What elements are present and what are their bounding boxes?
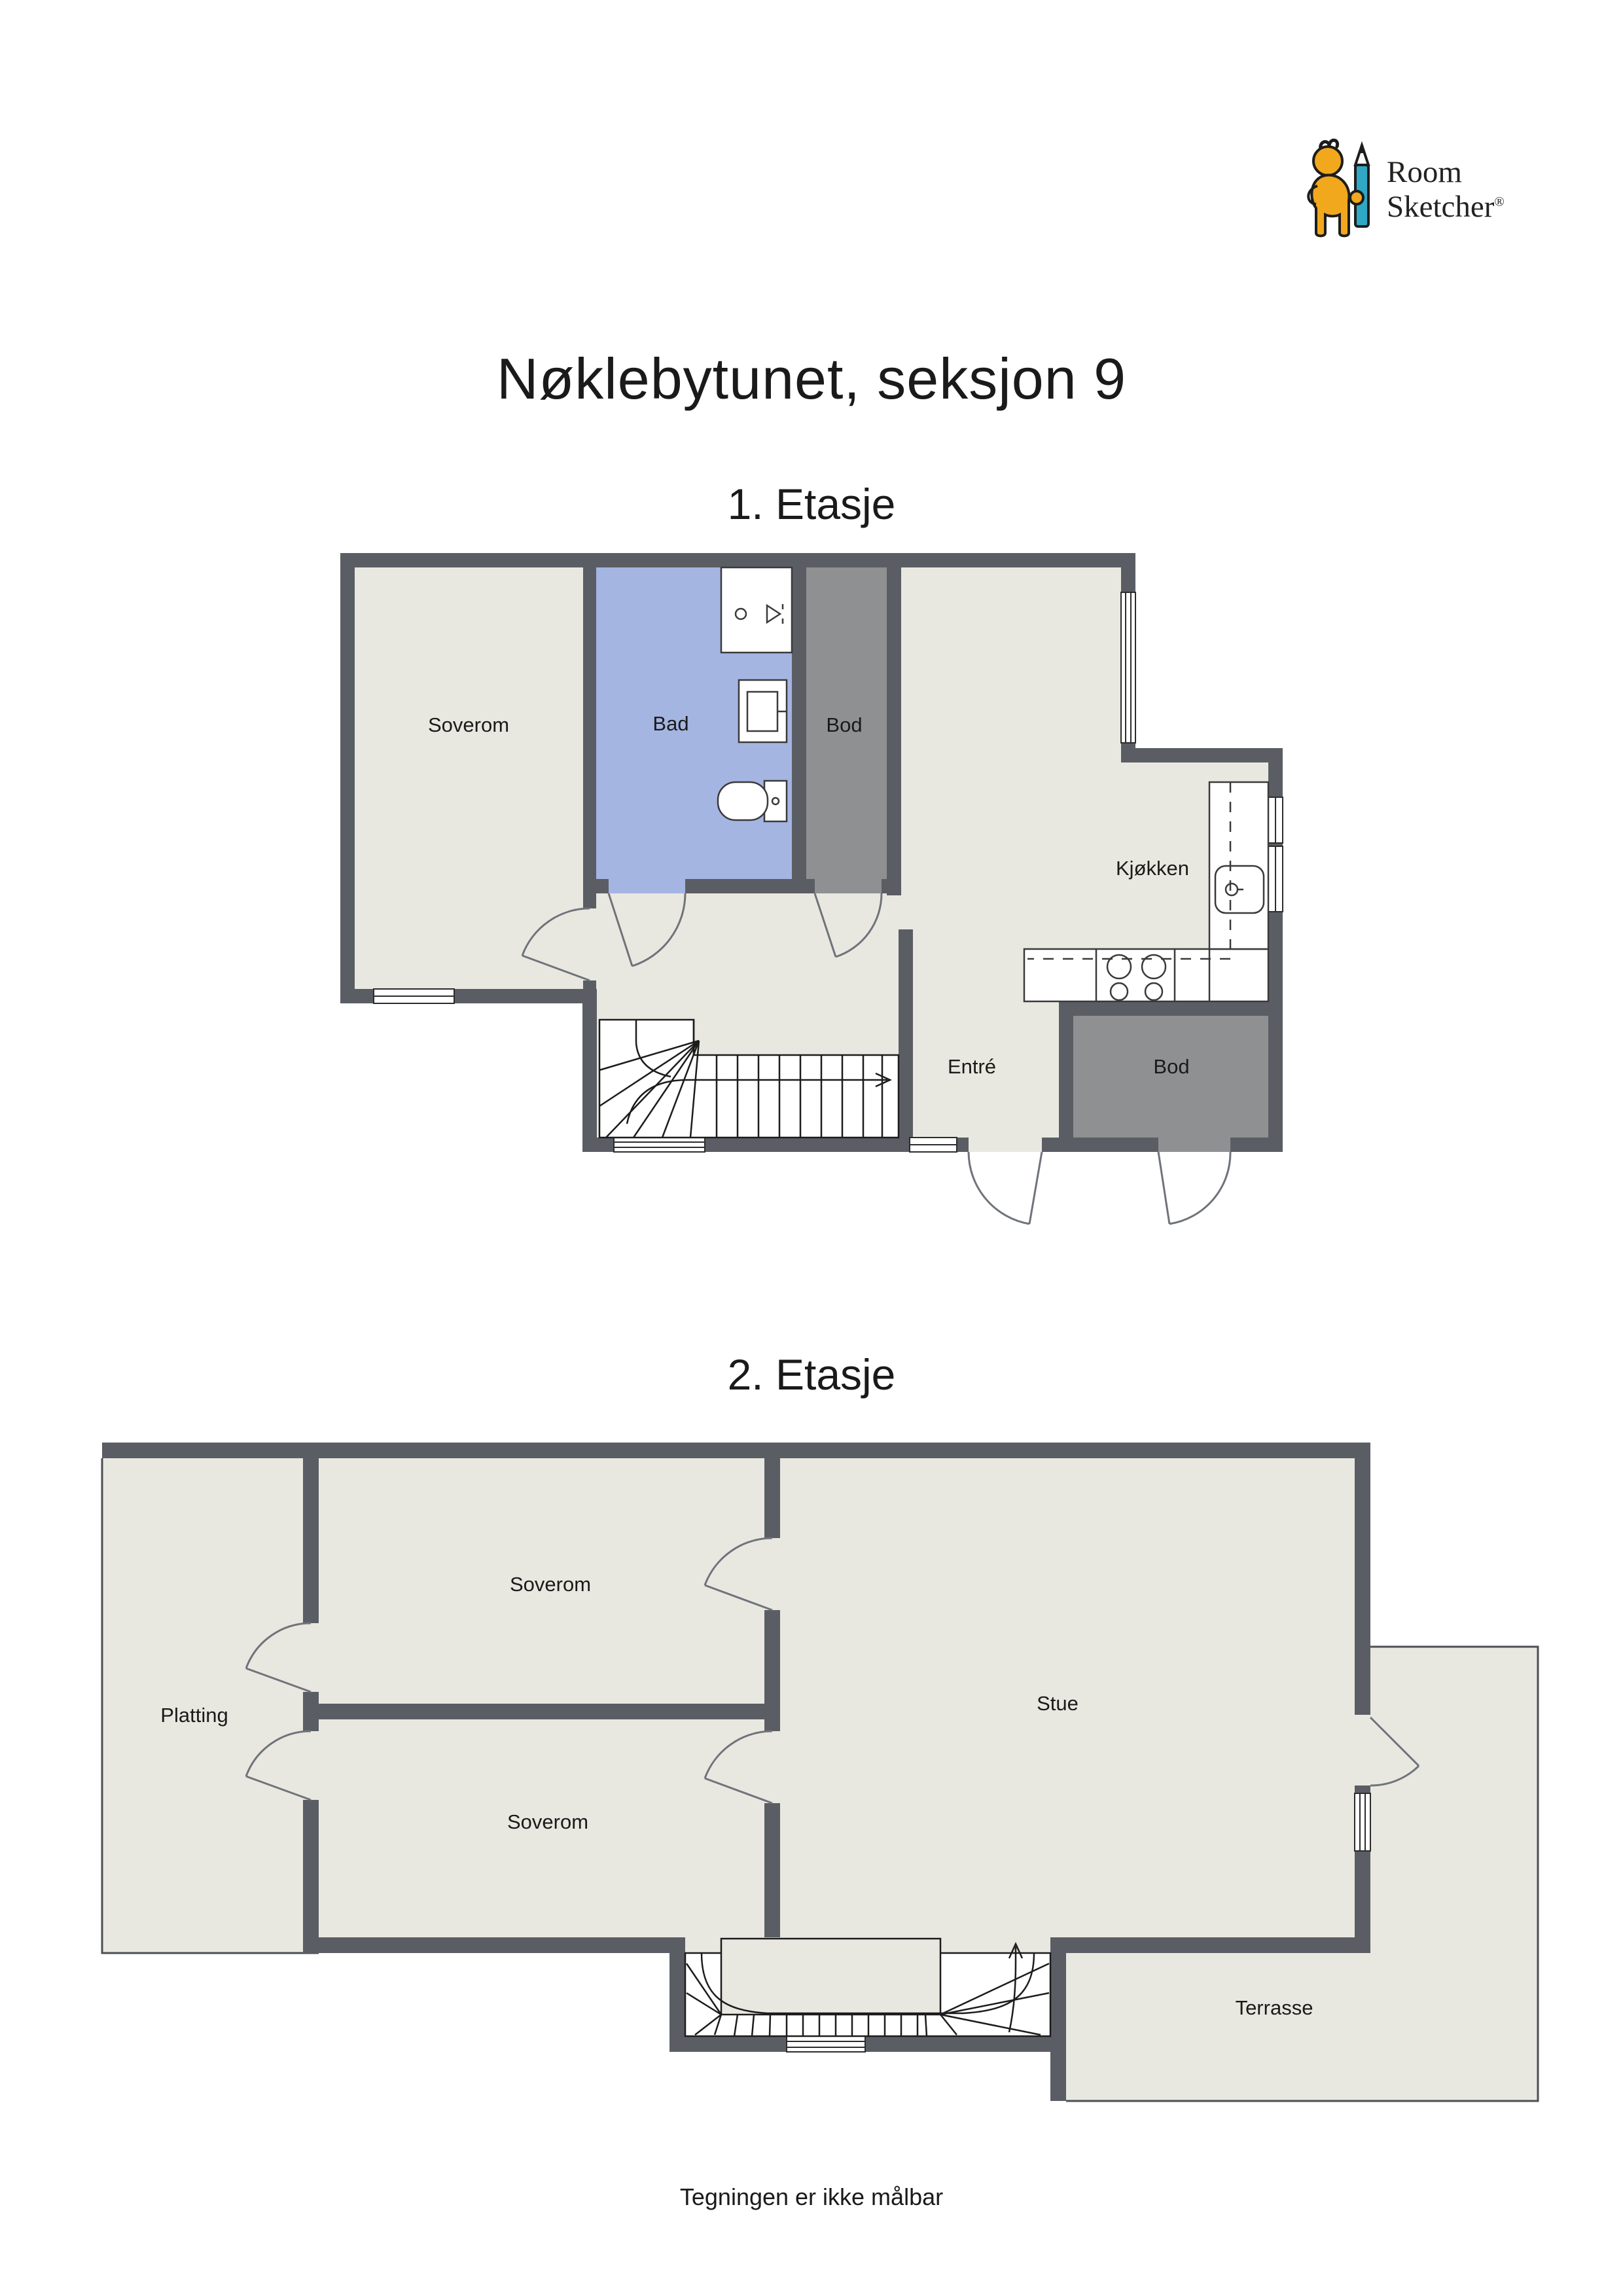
room-label-stue: Stue [1037, 1692, 1079, 1715]
wall-entre-left [899, 929, 913, 1138]
wall-bod2-top [1059, 1001, 1268, 1016]
floor2-top-wall [102, 1443, 1370, 1458]
kitchen-sink-icon [1215, 866, 1264, 913]
floor1-heading: 1. Etasje [0, 479, 1623, 529]
floor1-plan: Soverom Bad Bod Kjøkken Entré Bod [340, 553, 1296, 1260]
opening-platting-top [303, 1623, 319, 1692]
opening-balcony-door [1355, 1715, 1370, 1785]
toilet-icon [718, 781, 787, 821]
roomsketcher-wordmark: Room Sketcher® [1387, 155, 1505, 224]
footer-disclaimer: Tegningen er ikke målbar [0, 2183, 1623, 2211]
wall-bod2-left [1059, 1001, 1073, 1138]
door-entre [969, 1152, 1042, 1224]
bathroom-sink-icon [739, 680, 787, 742]
floor2-bottom-wall-right [1050, 1937, 1370, 1953]
opening-platting-bottom [303, 1731, 319, 1800]
window-hall [910, 1138, 957, 1152]
window-under-stairs [614, 1138, 705, 1152]
window-kitchen-2 [1268, 846, 1283, 912]
opening-bod [815, 879, 882, 893]
opening-bod-door [1158, 1138, 1230, 1152]
roomsketcher-logo: Room Sketcher® [1299, 131, 1574, 249]
wall-rooms-stue [764, 1458, 780, 1937]
bay-left-wall [669, 1937, 685, 2052]
roomsketcher-mascot-icon [1299, 135, 1378, 245]
room-label-soverom-bottom: Soverom [507, 1810, 588, 1833]
wall-bod-right [887, 567, 901, 895]
floor2-right-wall [1355, 1458, 1370, 1953]
page-title: Nøklebytunet, seksjon 9 [0, 346, 1623, 412]
floorplan-page: Room Sketcher® Nøklebytunet, seksjon 9 1… [0, 0, 1623, 2296]
window-bay [787, 2036, 865, 2052]
room-label-soverom: Soverom [428, 713, 509, 736]
opening-bad [609, 879, 685, 893]
floor2-plan: Platting Soverom Soverom Stue Terrasse [99, 1440, 1546, 2114]
opening-soverom-bottom [764, 1731, 780, 1803]
floor2-heading: 2. Etasje [0, 1350, 1623, 1399]
room-label-kjokken: Kjøkken [1116, 857, 1189, 880]
room-label-bad: Bad [652, 712, 688, 735]
logo-line1: Room [1387, 155, 1462, 189]
room-label-entre: Entré [948, 1055, 996, 1078]
shower-icon [721, 567, 792, 653]
bay-bottom-wall [669, 2036, 1066, 2052]
window-stue [1355, 1793, 1370, 1851]
wall-soverom-divider [303, 1704, 780, 1719]
room-label-bod-top: Bod [826, 713, 862, 736]
window-soverom [374, 989, 454, 1003]
room-label-platting: Platting [160, 1704, 228, 1727]
stairs-landing [721, 1939, 940, 2015]
registered-mark: ® [1494, 194, 1504, 209]
bay-right-wall [1050, 1937, 1066, 2101]
window-kitchen-1 [1268, 797, 1283, 843]
wall-bad-bod [792, 567, 806, 893]
opening-soverom-top [764, 1538, 780, 1610]
opening-soverom [583, 908, 596, 980]
opening-entre-door [969, 1138, 1042, 1152]
room-label-soverom-top: Soverom [510, 1573, 591, 1596]
door-bod-bottom [1158, 1152, 1230, 1224]
logo-line2: Sketcher [1387, 190, 1494, 224]
floor2-bottom-wall-left [303, 1937, 685, 1953]
room-label-bod-bottom: Bod [1153, 1055, 1189, 1078]
room-label-terrasse: Terrasse [1236, 1996, 1313, 2019]
window-notch [1121, 592, 1135, 743]
stairs-floor2 [685, 1939, 1050, 2036]
